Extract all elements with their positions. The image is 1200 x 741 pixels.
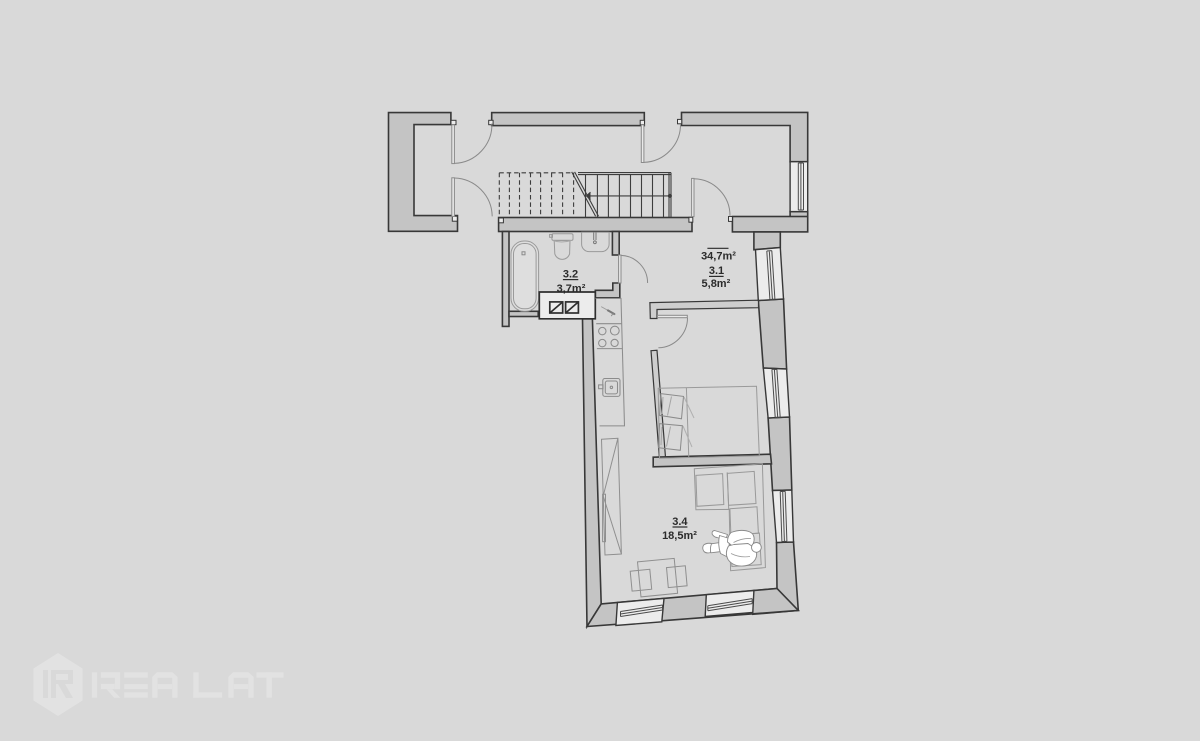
svg-text:18,5m²: 18,5m² [662,530,697,542]
svg-text:3,7m²: 3,7m² [557,283,586,295]
svg-text:5,8m²: 5,8m² [702,278,731,290]
svg-text:3.4: 3.4 [672,516,688,528]
svg-text:3.1: 3.1 [709,265,724,277]
svg-text:3.2: 3.2 [563,268,578,280]
svg-text:34,7m²: 34,7m² [701,251,736,263]
